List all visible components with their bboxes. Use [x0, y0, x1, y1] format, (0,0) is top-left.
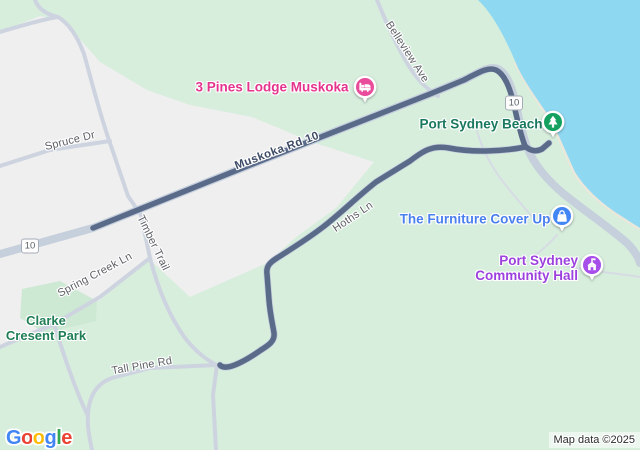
- poi-label-community-hall-line1: Port Sydney: [475, 253, 578, 268]
- route-10-shield-west-text: 10: [25, 241, 36, 252]
- poi-label-port-sydney-beach[interactable]: Port Sydney Beach: [419, 117, 542, 132]
- logo-letter: o: [21, 427, 33, 449]
- poi-label-furniture-cover-up[interactable]: The Furniture Cover Up: [400, 212, 551, 227]
- map-canvas[interactable]: Spruce Dr Muskoka Rd 10 Timber Trail Spr…: [0, 0, 640, 450]
- park-label-line1: Clarke: [6, 313, 86, 328]
- poi-label-community-hall-line2: Community Hall: [475, 268, 578, 283]
- route-10-shield-west: 10: [21, 239, 39, 254]
- map-attribution: Map data ©2025: [549, 432, 640, 448]
- poi-label-community-hall[interactable]: Port Sydney Community Hall: [475, 253, 578, 283]
- lodging-pin-icon[interactable]: [352, 74, 378, 106]
- road-tall-pine-rd: [88, 365, 217, 450]
- logo-letter: g: [45, 427, 57, 449]
- logo-letter: o: [33, 427, 45, 449]
- civic-building-pin-icon[interactable]: [579, 252, 605, 284]
- park-label-clarke-cresent: Clarke Cresent Park: [6, 313, 86, 343]
- park-label-line2: Cresent Park: [6, 328, 86, 343]
- logo-letter: G: [6, 427, 21, 449]
- park-beach-pin-icon[interactable]: [540, 109, 566, 141]
- hall-door: [591, 267, 594, 270]
- logo-letter: e: [61, 427, 72, 449]
- route-10-shield-north: 10: [505, 96, 523, 111]
- shopping-pin-icon[interactable]: [549, 203, 575, 235]
- google-logo[interactable]: Google: [6, 427, 72, 450]
- route-10-shield-north-text: 10: [509, 98, 520, 109]
- poi-label-3-pines-lodge[interactable]: 3 Pines Lodge Muskoka: [195, 80, 348, 95]
